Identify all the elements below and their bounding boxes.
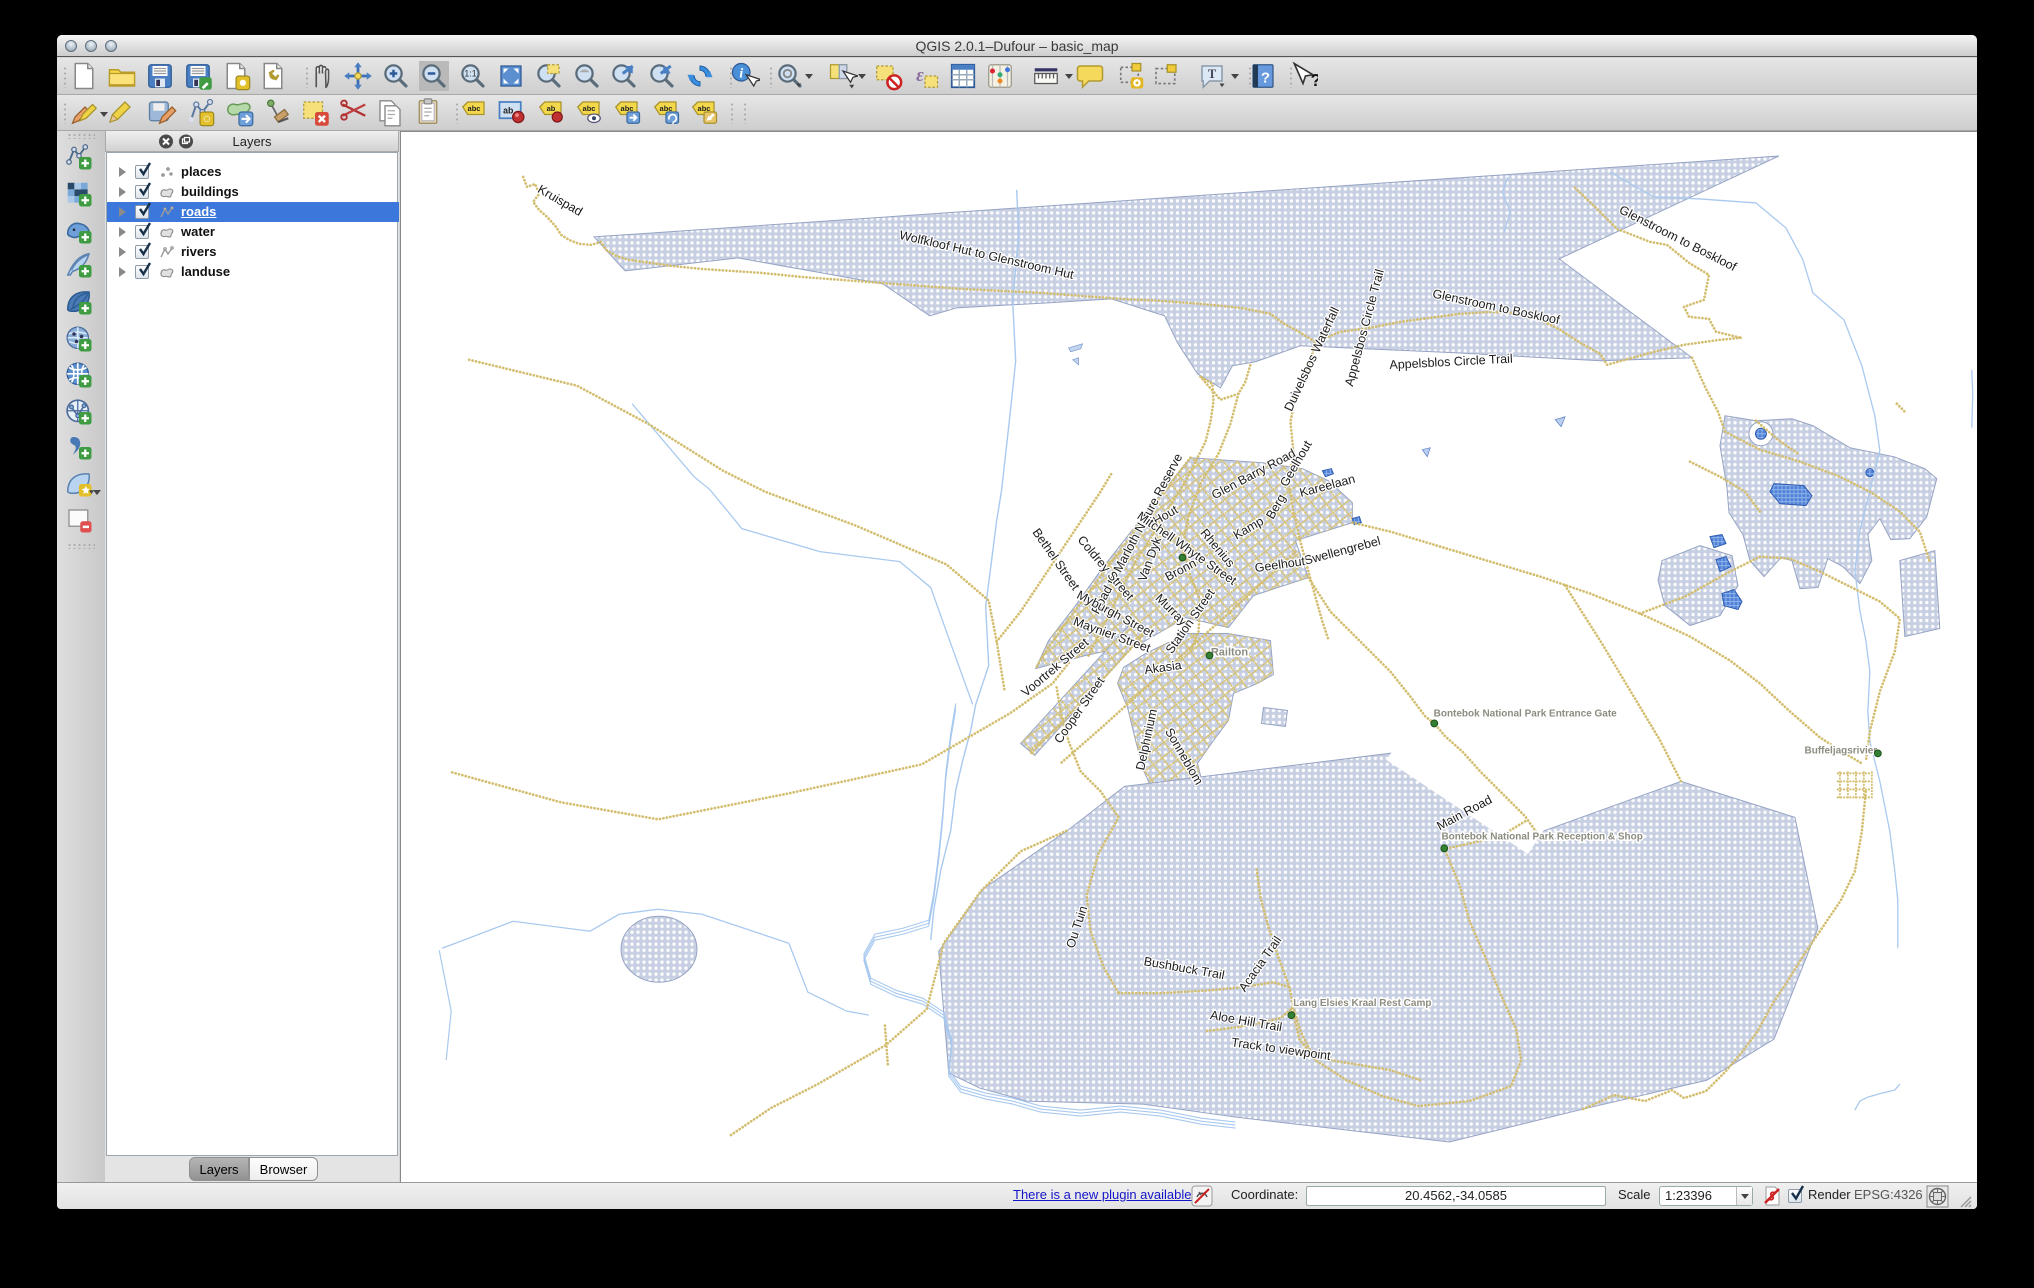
svg-text:Bethel Street: Bethel Street [1029, 526, 1082, 594]
svg-text:?: ? [1261, 69, 1270, 86]
svg-text:i: i [739, 65, 743, 80]
svg-text:?: ? [1311, 70, 1319, 90]
svg-text:abc: abc [468, 104, 481, 113]
svg-text:ab: ab [503, 105, 513, 115]
svg-text:ab: ab [547, 104, 556, 113]
svg-text:abc: abc [583, 104, 596, 113]
svg-text:Glenstroom to Boskloof: Glenstroom to Boskloof [1617, 203, 1739, 275]
svg-text:Bontebok National Park Recepti: Bontebok National Park Reception & Shop [1441, 831, 1642, 842]
svg-text:Bontebok National Park Entranc: Bontebok National Park Entrance Gate [1434, 708, 1618, 719]
svg-text:Lang Elsies Kraal Rest Camp: Lang Elsies Kraal Rest Camp [1293, 998, 1431, 1009]
svg-text:1:1: 1:1 [464, 69, 476, 79]
svg-text:Railton: Railton [1211, 647, 1248, 659]
svg-text:Swellengrebel: Swellengrebel [1303, 534, 1382, 568]
svg-text:Appelsblos Circle Trail: Appelsblos Circle Trail [1389, 352, 1513, 372]
svg-text:ε: ε [916, 65, 924, 86]
svg-text:T: T [1208, 67, 1217, 81]
svg-text:Buffeljagsrivier: Buffeljagsrivier [1805, 745, 1878, 756]
